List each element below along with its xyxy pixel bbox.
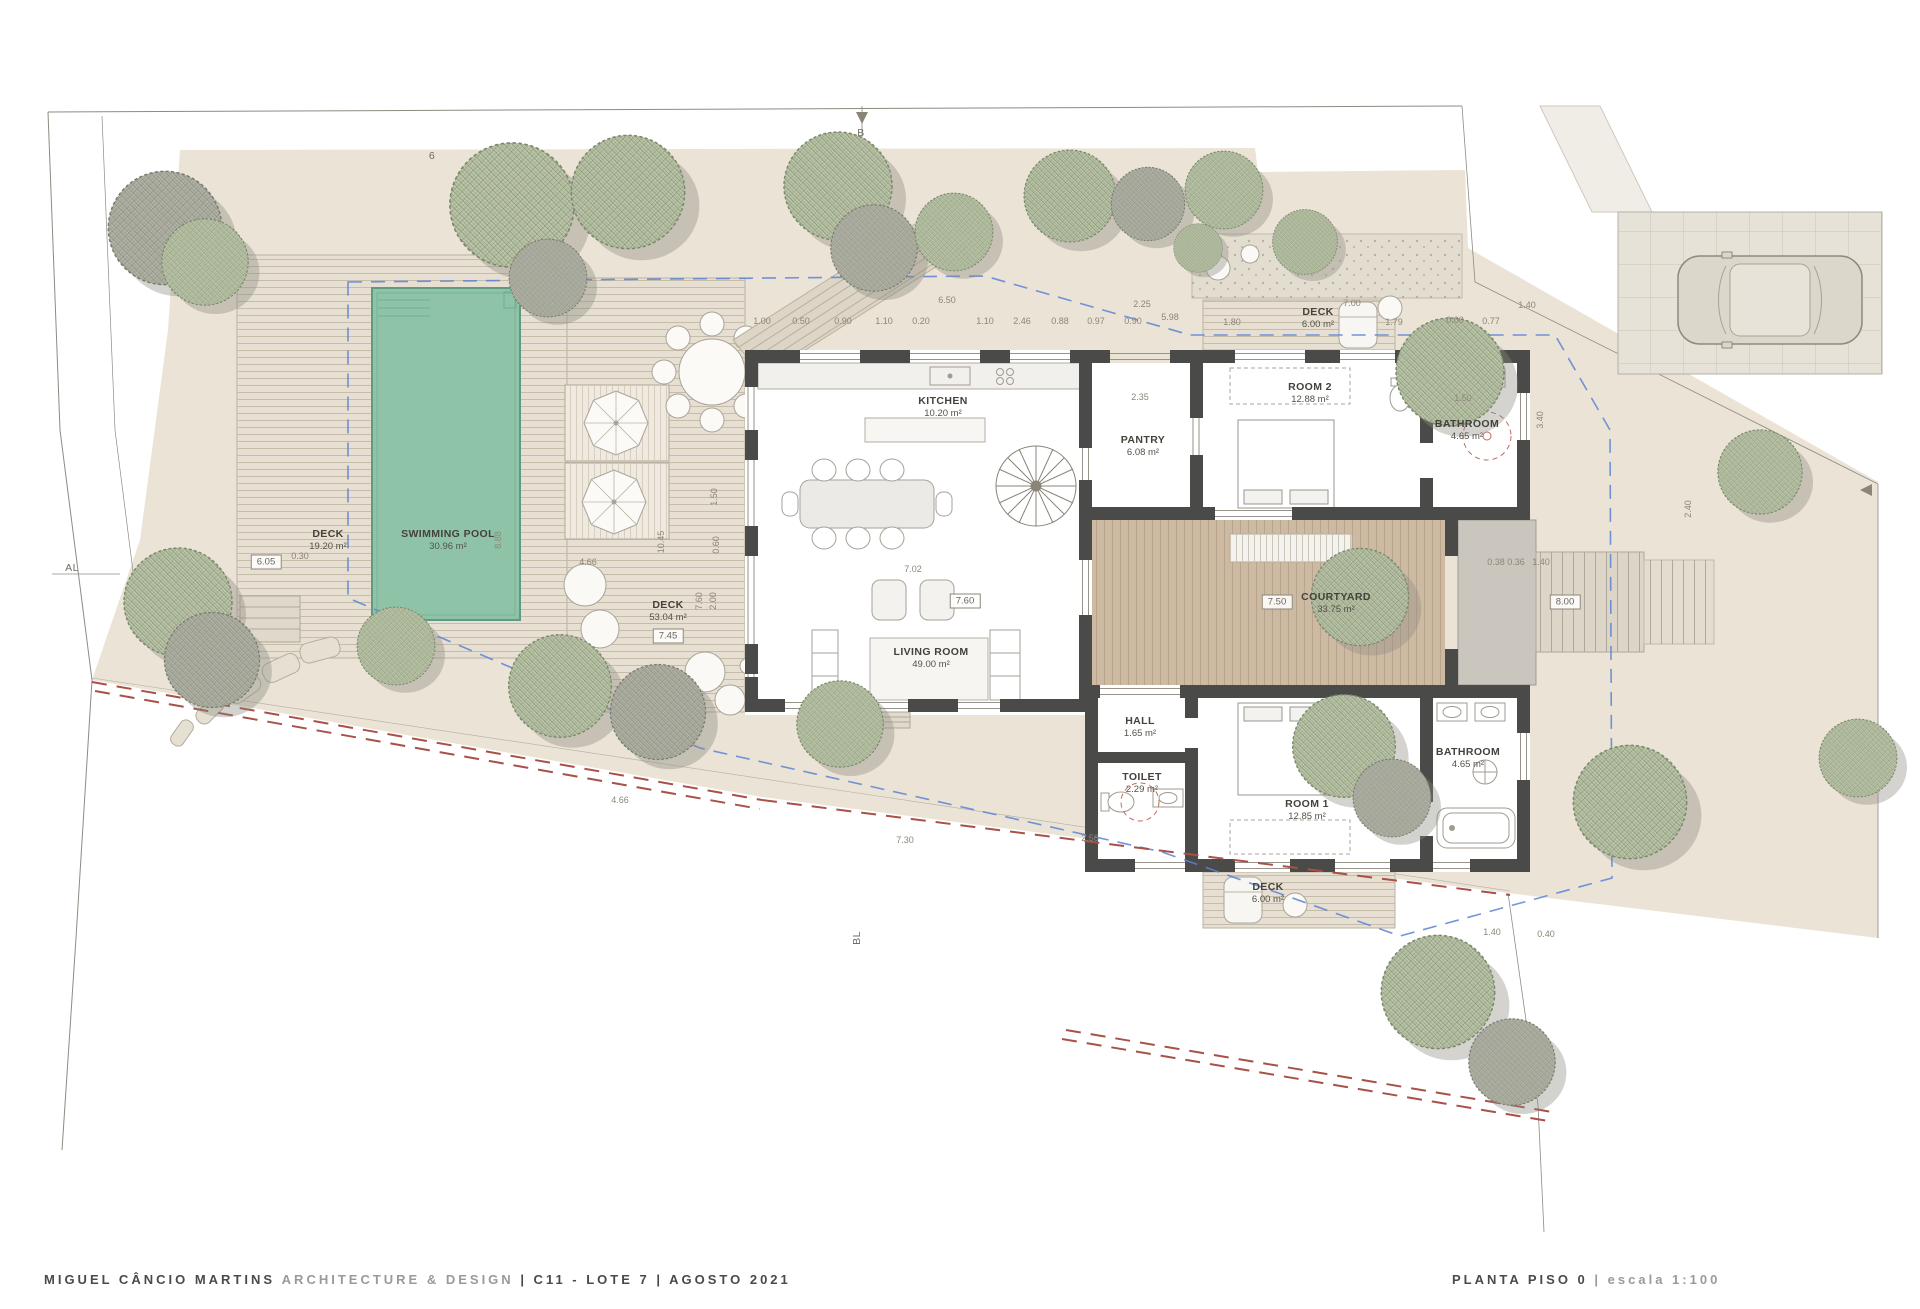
- sheet-scale: | escala 1:100: [1594, 1272, 1720, 1287]
- boxed-dimension: 7.45: [653, 629, 684, 644]
- title-block-right: PLANTA PISO 0 | escala 1:100: [1452, 1272, 1720, 1287]
- umbrella-icon: [582, 470, 646, 534]
- room2-deck: [1203, 296, 1402, 350]
- swimming-pool: [372, 288, 520, 620]
- sheet-name: PLANTA PISO 0: [1452, 1272, 1588, 1287]
- boxed-dimension: 7.50: [1262, 595, 1293, 610]
- boxed-dimension: 7.60: [950, 594, 981, 609]
- car-top-view: [1678, 252, 1862, 348]
- umbrella-icon: [584, 391, 648, 455]
- boxed-dimension: 8.00: [1550, 595, 1581, 610]
- project-name: | C11 - LOTE 7 | AGOSTO 2021: [520, 1272, 790, 1287]
- title-block-left: MIGUEL CÂNCIO MARTINS ARCHITECTURE & DES…: [44, 1272, 791, 1287]
- chaise-icon: [1339, 302, 1377, 348]
- spiral-staircase: [996, 446, 1076, 526]
- chaise-icon: [1224, 877, 1262, 923]
- floor-plan-drawing: [0, 0, 1920, 1309]
- drawing-sheet: DECK19.20 m²SWIMMING POOL30.96 m²DECK53.…: [0, 0, 1920, 1309]
- firm-name: MIGUEL CÂNCIO MARTINS: [44, 1272, 275, 1287]
- firm-dept: ARCHITECTURE & DESIGN: [282, 1272, 514, 1287]
- boxed-dimension: 6.05: [251, 555, 282, 570]
